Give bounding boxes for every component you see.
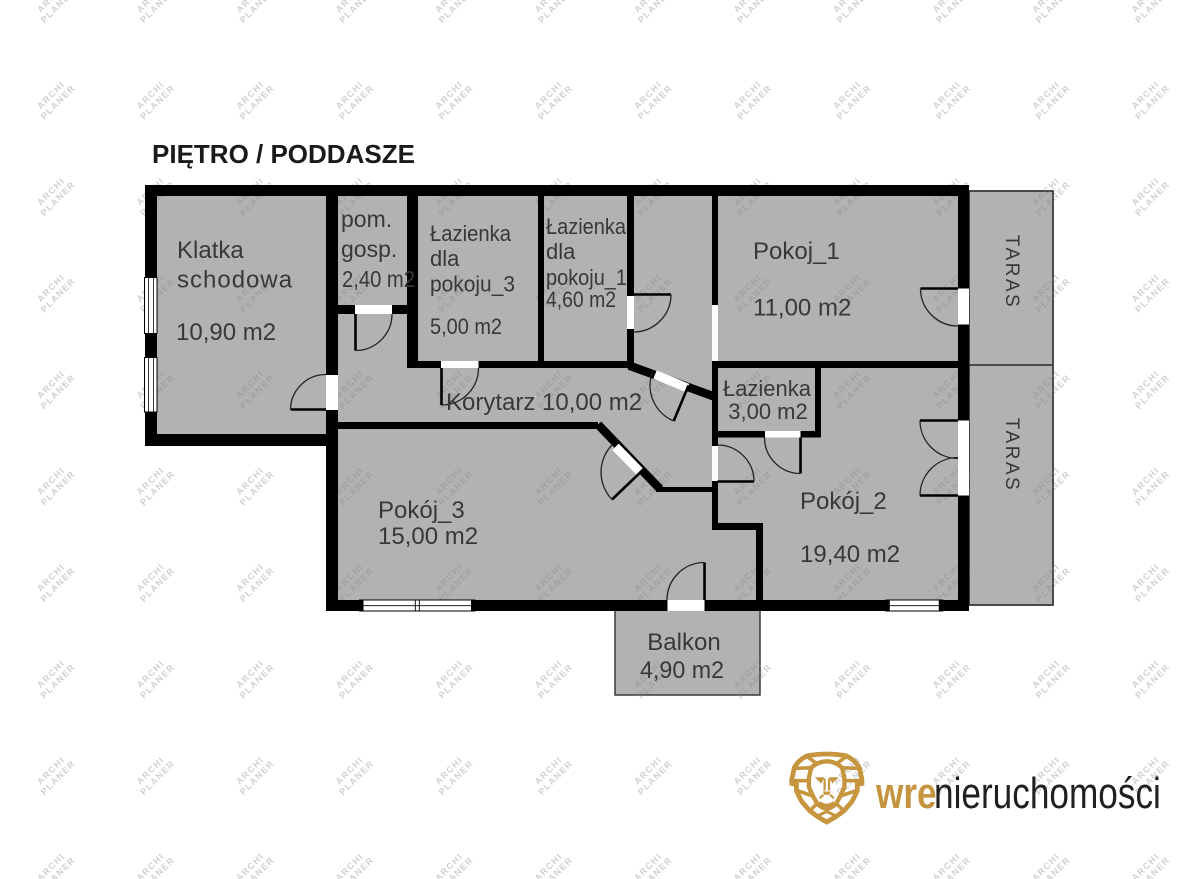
svg-text:Pokój_2: Pokój_2 (800, 488, 887, 515)
svg-text:10,90 m2: 10,90 m2 (176, 319, 276, 346)
svg-text:3,00 m2: 3,00 m2 (728, 399, 808, 424)
svg-text:TARAS: TARAS (1001, 235, 1022, 309)
svg-text:15,00 m2: 15,00 m2 (378, 523, 478, 550)
svg-text:dla: dla (546, 239, 576, 264)
svg-text:TARAS: TARAS (1001, 418, 1022, 492)
svg-text:Balkon: Balkon (647, 629, 720, 656)
svg-text:19,40 m2: 19,40 m2 (800, 541, 900, 568)
svg-text:11,00 m2: 11,00 m2 (753, 295, 851, 322)
svg-text:pom.: pom. (341, 206, 392, 232)
svg-text:Łazienka: Łazienka (723, 376, 812, 401)
svg-text:nieruchomości: nieruchomości (934, 769, 1161, 818)
svg-text:pokoju_3: pokoju_3 (430, 272, 515, 297)
svg-text:dla: dla (430, 246, 460, 271)
svg-text:Łazienka: Łazienka (546, 214, 627, 239)
svg-text:Korytarz 10,00 m2: Korytarz 10,00 m2 (446, 389, 642, 416)
svg-text:Pokoj_1: Pokoj_1 (753, 238, 840, 265)
svg-text:5,00 m2: 5,00 m2 (430, 314, 502, 339)
svg-text:2,40 m2: 2,40 m2 (342, 266, 415, 292)
svg-text:Łazienka: Łazienka (430, 221, 512, 246)
svg-text:4,60 m2: 4,60 m2 (546, 287, 616, 312)
svg-text:4,90 m2: 4,90 m2 (640, 657, 724, 684)
svg-text:Klatka: Klatka (177, 237, 244, 264)
svg-text:PIĘTRO / PODDASZE: PIĘTRO / PODDASZE (152, 139, 415, 169)
svg-text:Pokój_3: Pokój_3 (378, 497, 465, 524)
svg-text:wre: wre (875, 769, 937, 818)
svg-text:gosp.: gosp. (341, 236, 397, 262)
svg-text:schodowa: schodowa (177, 267, 293, 294)
